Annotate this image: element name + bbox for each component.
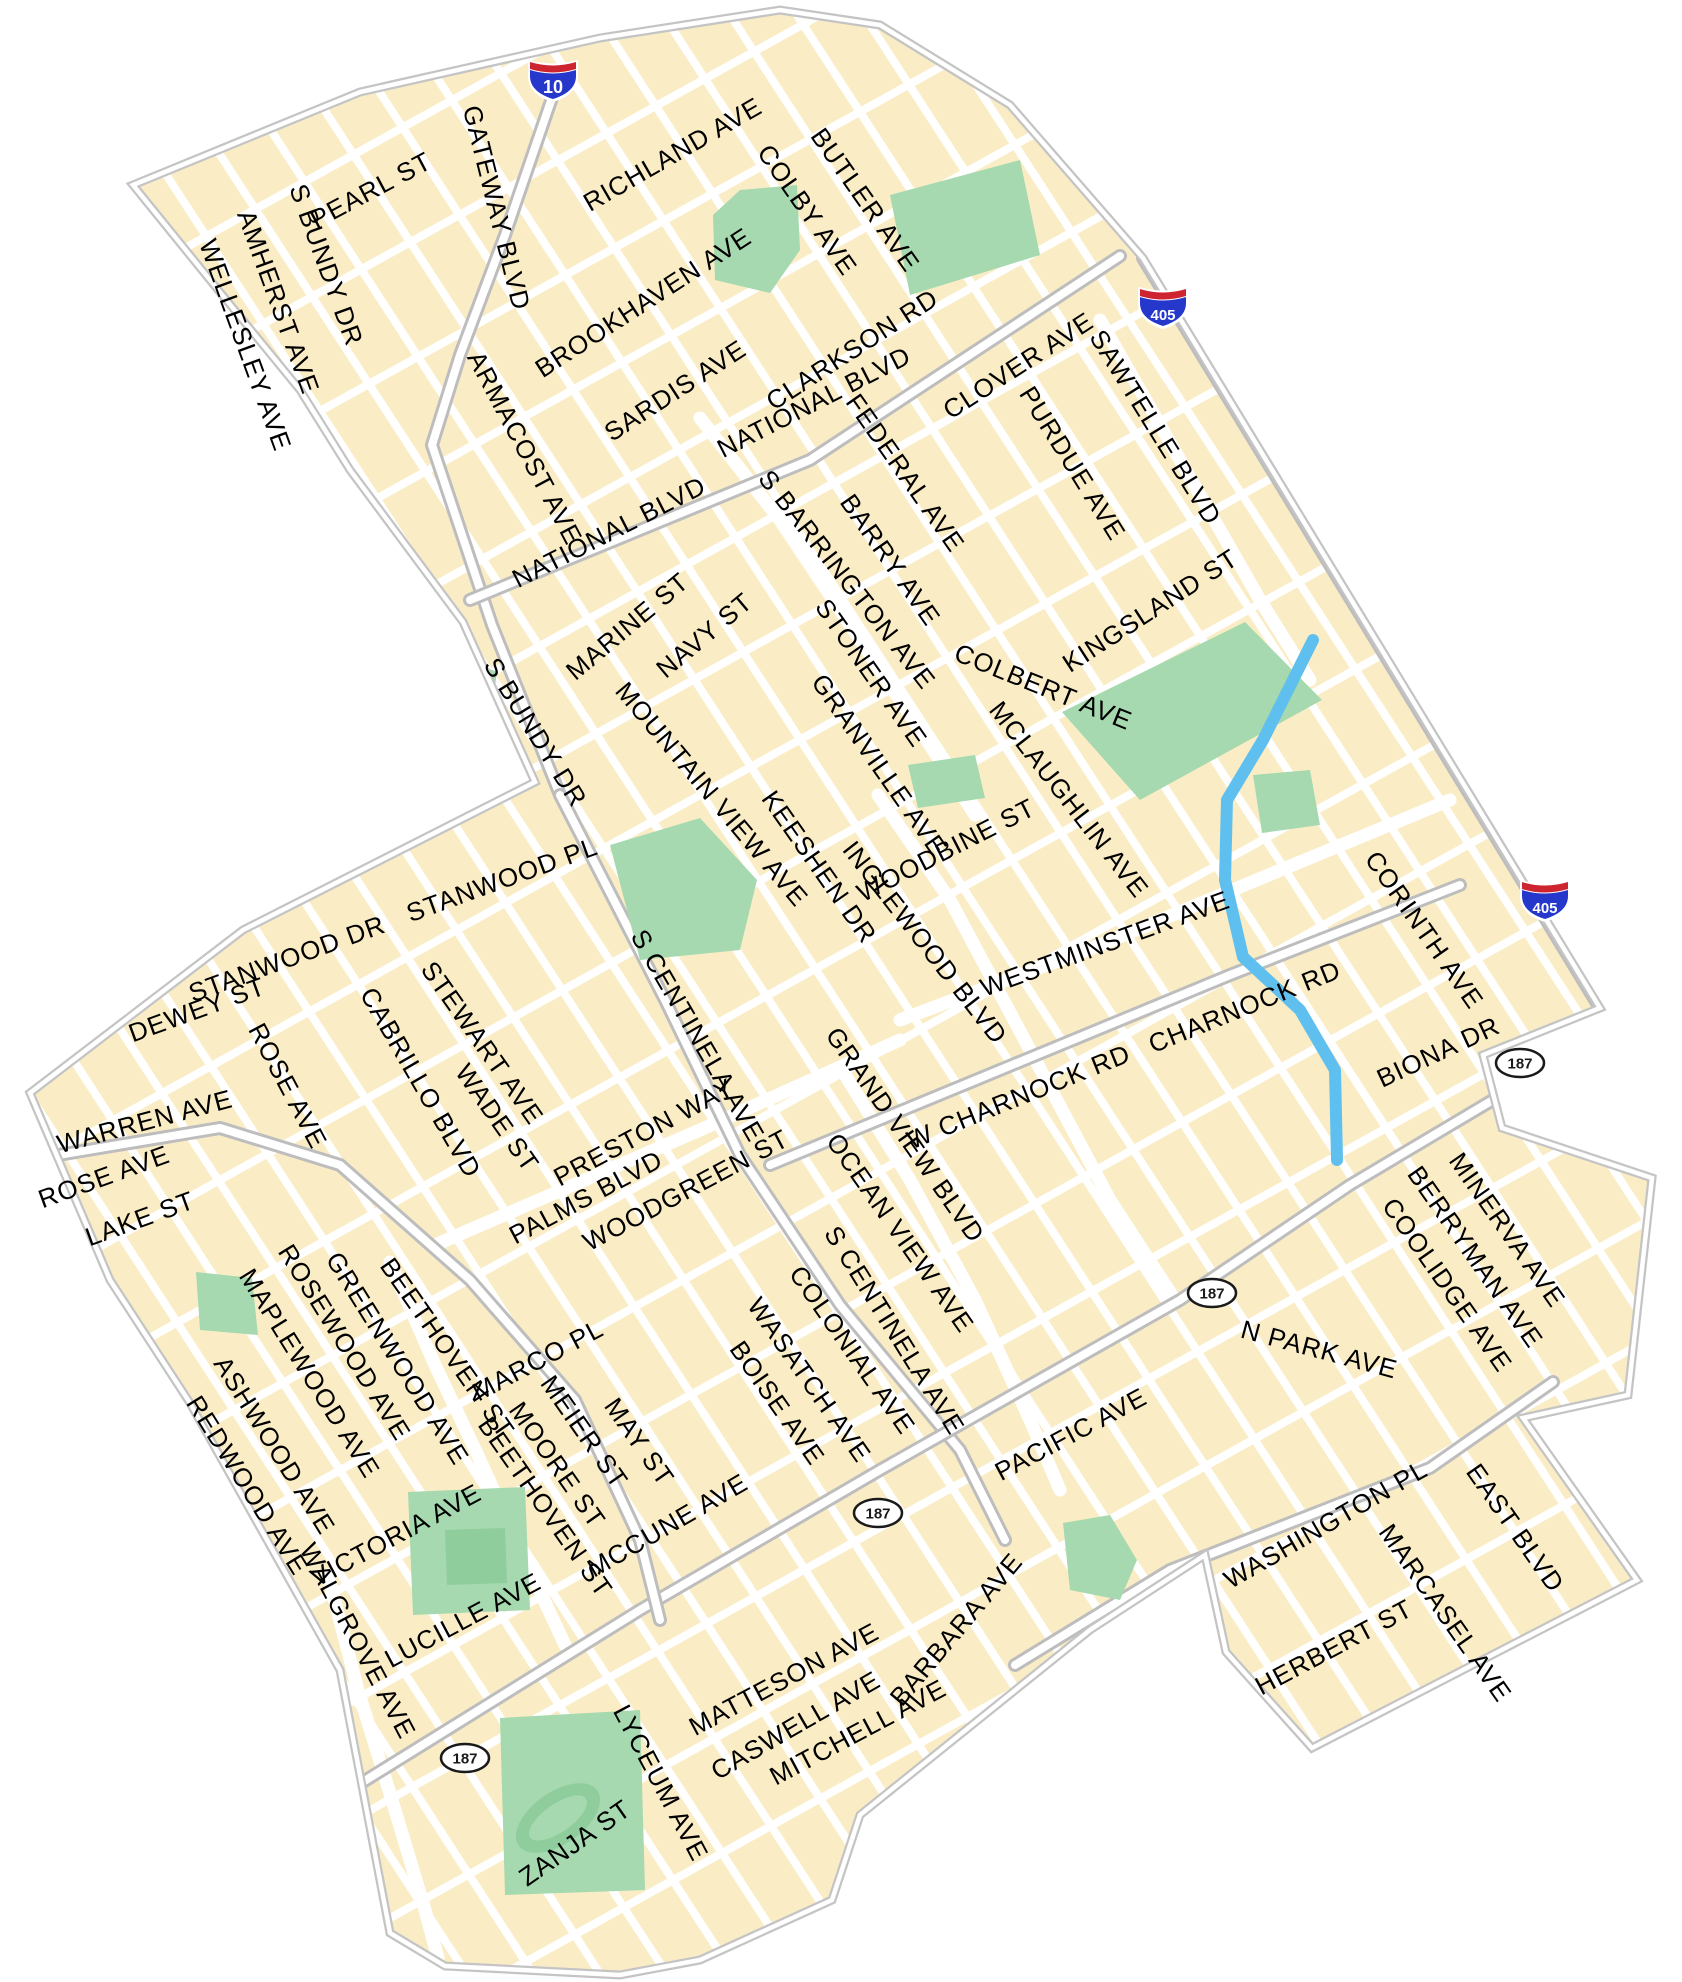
- map-svg[interactable]: 10405405187187187187PEARL STS BUNDY DRAM…: [0, 0, 1682, 1982]
- map-viewport[interactable]: 10405405187187187187PEARL STS BUNDY DRAM…: [0, 0, 1682, 1982]
- shield-number: 10: [543, 77, 563, 97]
- state-route-187-shield-icon: 187: [1188, 1279, 1236, 1307]
- shield-number: 187: [452, 1751, 477, 1768]
- shield-number: 187: [865, 1506, 890, 1523]
- shield-number: 405: [1532, 900, 1557, 917]
- state-route-187-shield-icon: 187: [441, 1744, 489, 1772]
- state-route-187-shield-icon: 187: [854, 1499, 902, 1527]
- state-route-187-shield-icon: 187: [1496, 1049, 1544, 1077]
- shield-number: 187: [1507, 1056, 1532, 1073]
- map-canvas[interactable]: 10405405187187187187PEARL STS BUNDY DRAM…: [0, 0, 1682, 1982]
- shield-number: 405: [1150, 307, 1175, 324]
- school-building: [445, 1528, 507, 1585]
- park-creekside: [1253, 770, 1320, 833]
- shield-number: 187: [1199, 1286, 1224, 1303]
